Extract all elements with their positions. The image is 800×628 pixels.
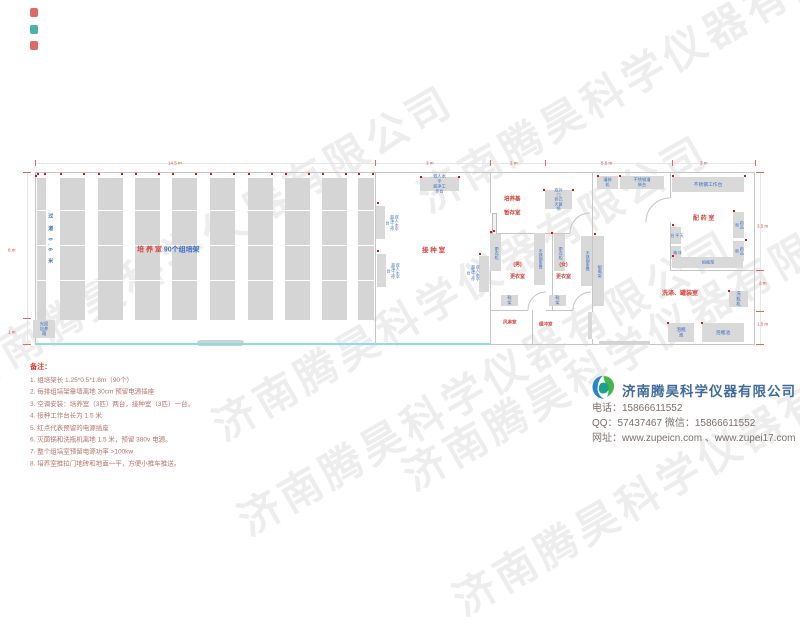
power-outlet-dot [195, 173, 197, 175]
filling-table: 不锈钢灌装台 [620, 176, 664, 189]
label-part: 5.5 m [601, 161, 612, 166]
label-part: 风淋室 [503, 320, 517, 325]
power-outlet-dot [377, 250, 379, 252]
bottle-rack-prep-label: 组瓶架 [701, 260, 714, 265]
power-outlet-dot [345, 173, 347, 175]
female-changing-label-text: (女) 更衣室 [556, 259, 571, 283]
dimension-label-text: 3 m [426, 161, 434, 166]
power-outlet-dot [543, 189, 545, 191]
culture-room-label-text: 培 养 室 90个组培架 [137, 243, 200, 254]
locker-female-label: 更衣柜 [557, 246, 562, 259]
door-arc [570, 213, 590, 233]
dimension-label-text: 5.5 m [601, 161, 612, 166]
soak-pool-1: 泡瓶池 [668, 323, 694, 342]
label-part: 1 m [8, 330, 16, 335]
air-shower-label-text: 风淋室 [503, 318, 517, 325]
bottle-rack-prep: 组瓶架 [672, 257, 743, 268]
soak-pool-2: 泡瓶池 [702, 323, 744, 342]
power-outlet-dot [60, 173, 62, 175]
dimension-label-text: 2 m [510, 161, 518, 166]
stainless-worktable: 不锈钢工作台 [672, 177, 744, 192]
bottle-rack-wall: 组瓶架 [593, 236, 604, 306]
door-washing-room [599, 341, 650, 345]
power-outlet-dot [572, 189, 574, 191]
washing-room-label-text: 洗涤、罐装室 [662, 288, 698, 297]
bottle-washer-label: 洗瓶机 [734, 291, 743, 307]
bottle-rack-wall-label: 组瓶架 [596, 265, 601, 278]
label-part: (女) 更衣室 [556, 262, 571, 280]
notes-title: 备注： [30, 361, 407, 371]
power-outlet-dot [458, 176, 460, 178]
label-part: 配 药 室 [693, 215, 714, 222]
sterilizer-label: 双外门 卧式灭菌锅 [553, 188, 564, 211]
note-item: 2. 每排组培架靠墙离地 30cm 预留电源插座 [30, 387, 407, 399]
door-leaf-buffer [588, 312, 592, 339]
clean-bench-top: 双人水平 超净工作台 [420, 177, 459, 191]
door-arc [646, 198, 670, 222]
female-changing-label: (女) 更衣室 [556, 259, 586, 307]
dimension-label: 2 m [510, 156, 527, 174]
company-name: 济南腾昊科学仪器有限公司 [622, 380, 796, 400]
soak-pool-1-label: 泡瓶池 [675, 327, 687, 338]
company-phone: 电话：15866611552 [592, 399, 682, 414]
power-outlet-dot [158, 173, 160, 175]
power-outlet-dot [233, 173, 235, 175]
power-outlet-dot [210, 173, 212, 175]
air-shower-label: 风淋室 [503, 317, 533, 335]
power-outlet-dot [44, 173, 46, 175]
label-part: (男) 更衣室 [510, 262, 525, 280]
power-outlet-dot [172, 173, 174, 175]
power-outlet-dot [377, 202, 379, 204]
buffer-room-label-text: 缓冲室 [539, 320, 553, 327]
power-outlet-dot [597, 175, 599, 177]
company-website: 网址：www.zupeicn.com 、www.zupei17.com [592, 429, 795, 444]
power-outlet-dot [83, 173, 85, 175]
note-item: 4. 接种工作台长为 1.5 米 [30, 411, 407, 423]
power-outlet-dot [672, 175, 674, 177]
label-part: 2 m [510, 161, 518, 166]
label-part: 14.5 m [168, 161, 182, 166]
prep-room-label: 配 药 室 [693, 212, 729, 230]
medium-storage-label-text: 培养基 暂存室 [504, 192, 521, 221]
dimension-label: 3 m [426, 156, 443, 174]
aisle-label-text: 过 道 0.6 米 [46, 213, 54, 266]
balance-table-label: 天平台 [669, 232, 683, 239]
dimension-label: 8 m [8, 243, 25, 261]
dimension-label-text: 8 m [8, 248, 16, 253]
balance-table: 天平台 [671, 227, 681, 244]
dimension-label: 1 m [8, 325, 25, 343]
power-outlet-dot [420, 176, 422, 178]
inoculation-room-label-text: 接 种 室 [422, 244, 445, 254]
power-outlet-dot [551, 232, 553, 234]
power-outlet-dot [619, 175, 621, 177]
power-outlet-dot [37, 173, 39, 175]
note-item: 8. 培养室推拉门地砖和地面一平，方便小推车推送。 [30, 458, 407, 470]
power-outlet-dot [358, 173, 360, 175]
power-outlet-dot [98, 173, 100, 175]
medium-storage-label: 培养基 暂存室 [504, 192, 534, 244]
clean-bench-left-1-label: 双人水平 超净工作台 [385, 203, 398, 243]
medicine-cabinet-1-label: 药品柜 [734, 220, 743, 230]
stainless-worktable-label: 不锈钢工作台 [694, 182, 723, 188]
power-outlet-dot [745, 239, 747, 241]
inoculation-room-label: 接 种 室 [422, 243, 458, 261]
note-item: 7. 整个组培室预留电源功率 >100kw [30, 446, 407, 458]
notes-inner: 备注： 1. 组培架长 1.25*0.5*1.8m（90个）2. 每排组培架靠墙… [30, 361, 407, 470]
dimension-label: 3.5 m [757, 219, 782, 237]
dimension-label-text: 3.5 m [757, 224, 768, 229]
corner-mark [30, 25, 38, 34]
note-item: 1. 组培架长 1.25*0.5*1.8m（90个） [30, 375, 407, 387]
clean-bench-right-label-label: 双人水平 超净工作台 [466, 265, 480, 281]
locker-male: 更衣柜 [490, 234, 501, 271]
power-outlet-dot [672, 224, 674, 226]
medicine-cabinet-1: 药品柜 [733, 212, 744, 238]
power-outlet-dot [594, 233, 596, 235]
dimension-label: 3 m [700, 156, 717, 174]
label-part: 洗涤、罐装室 [662, 290, 698, 297]
notes-section: 备注： 1. 组培架长 1.25*0.5*1.8m（90个）2. 每排组培架靠墙… [30, 361, 610, 529]
label-part: 接 种 室 [422, 247, 445, 254]
clean-bench-left-1-label-label: 双人水平 超净工作台 [385, 215, 399, 231]
label-part: 过 道 0.6 米 [47, 213, 53, 266]
note-item: 3. 空调安装：培养室（3匹）两台，接种室（3匹）一台。 [30, 399, 407, 411]
sliding-track-line [35, 343, 490, 345]
label-part: 3.5 m [757, 224, 768, 229]
dimension-label-text: 14.5 m [168, 161, 182, 166]
corner-mark [30, 8, 38, 17]
culture-room-label: 培 养 室 90个组培架 [137, 242, 226, 260]
power-outlet-dot [733, 210, 735, 212]
power-outlet-dot [322, 173, 324, 175]
company-qq-wechat: QQ：57437467 微信：15866611552 [592, 414, 755, 429]
dimension-label: 1.5 m [757, 317, 782, 335]
power-outlet-dot [493, 230, 495, 232]
filling-machine-label: 灌装机 [603, 178, 612, 188]
filling-machine: 灌装机 [597, 176, 618, 189]
notes-list: 1. 组培架长 1.25*0.5*1.8m（90个）2. 每排组培架靠墙离地 3… [30, 375, 407, 471]
power-outlet-dot [285, 173, 287, 175]
dimension-label-text: 1.5 m [757, 322, 768, 327]
soak-pool-2-label: 泡瓶池 [716, 330, 730, 336]
power-outlet-dot [479, 253, 481, 255]
label-part: 1.5 m [757, 322, 768, 327]
power-outlet-dot [121, 173, 123, 175]
clean-bench-left-2-label: 双人水平 超净工作台 [386, 251, 399, 291]
label-part: 2 m [759, 281, 767, 286]
filling-table-label: 不锈钢灌装台 [633, 178, 651, 188]
power-outlet-dot [135, 173, 137, 175]
label-part: 90个组培架 [164, 246, 200, 254]
note-item: 5. 红点代表预留的电源插座 [30, 423, 407, 435]
power-outlet-dot [271, 173, 273, 175]
dimension-label: 5.5 m [601, 156, 626, 174]
sterilizer: 双外门 卧式灭菌锅 [545, 190, 572, 209]
label-part: 3 m [700, 161, 708, 166]
bottle-washer: 洗瓶机 [729, 291, 748, 307]
male-changing-label-text: (男) 更衣室 [510, 259, 525, 283]
dimension-label: 2 m [759, 276, 776, 294]
label-part: 培养基 暂存室 [504, 196, 521, 216]
label-part: 缓冲室 [539, 322, 553, 327]
power-outlet-dot [672, 255, 674, 257]
power-outlet-dot [728, 290, 730, 292]
locker-male-label: 更衣柜 [493, 246, 498, 259]
buffer-room-label: 缓冲室 [539, 319, 569, 337]
washing-room-label: 洗涤、罐装室 [662, 287, 722, 305]
power-outlet-dot [701, 322, 703, 324]
power-outlet-dot [35, 175, 37, 177]
label-part: 培 养 室 [137, 246, 164, 254]
label-part: 8 m [8, 248, 16, 253]
power-outlet-dot [490, 231, 492, 233]
clean-bench-left-2-label-label: 双人水平 超净工作台 [386, 263, 400, 279]
power-outlet-dot [744, 175, 746, 177]
corner-mark [30, 41, 38, 50]
medicine-cabinet-2-label: 药品柜 [734, 247, 743, 255]
dimension-label-text: 2 m [759, 281, 767, 286]
dimension-label-text: 1 m [8, 330, 16, 335]
page: { "watermark": { "text": "济南腾昊科学仪器有限公司",… [0, 0, 800, 600]
power-outlet-dot [248, 173, 250, 175]
clean-bench-right-label: 双人水平 超净工作台 [466, 253, 479, 293]
prep-room-label-text: 配 药 室 [693, 213, 714, 222]
aisle-label: 过 道 0.6 米 [46, 213, 102, 324]
male-changing-label: (男) 更衣室 [510, 259, 540, 307]
clean-bench-top-label: 双人水平 超净工作台 [431, 174, 447, 193]
dimension-label-text: 3 m [700, 161, 708, 166]
note-item: 6. 灭菌锅和洗瓶机离地 1.5 米，预留 380v 电源。 [30, 434, 407, 446]
dimension-label: 14.5 m [168, 156, 199, 174]
label-part: 3 m [426, 161, 434, 166]
power-outlet-dot [372, 173, 374, 175]
power-outlet-dot [667, 322, 669, 324]
clean-bench-right [479, 256, 489, 292]
power-outlet-dot [308, 173, 310, 175]
